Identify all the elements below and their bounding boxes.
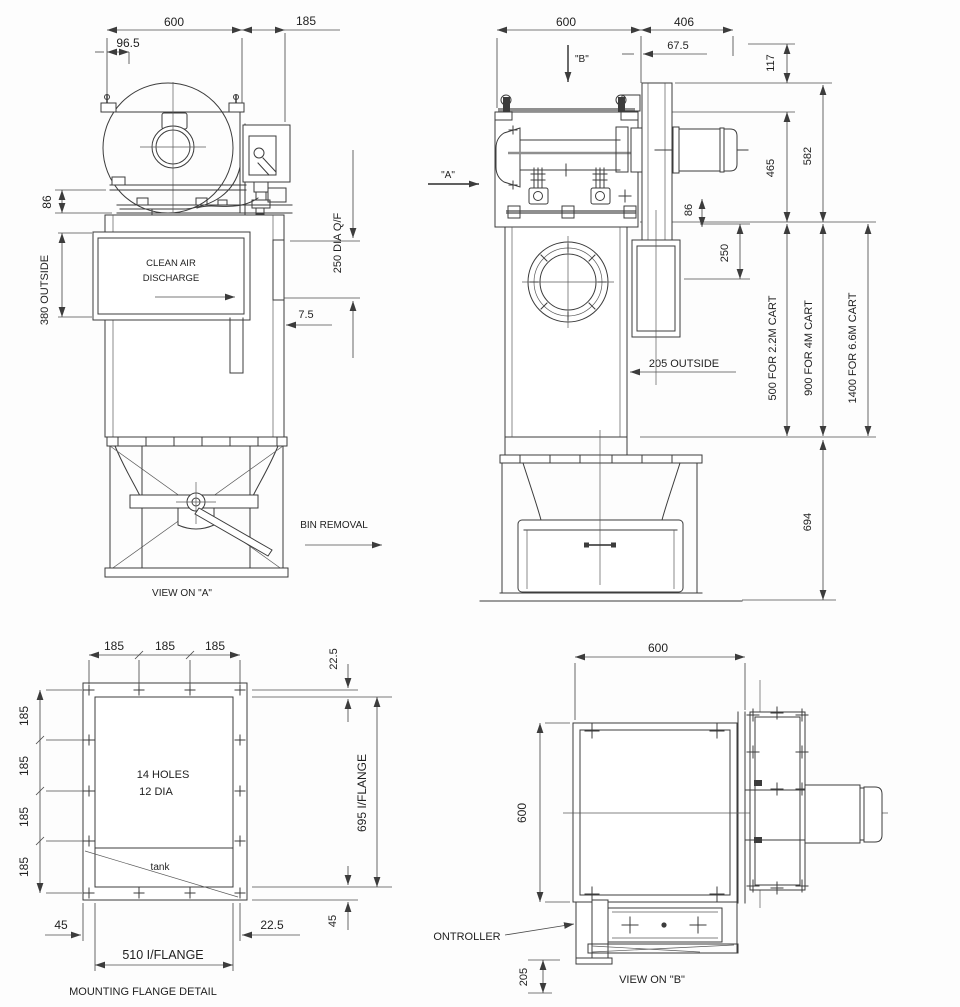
dim-250: 250	[719, 244, 731, 262]
cart-2-2m-label: 500 FOR 2.2M CART	[767, 295, 779, 400]
dim-406: 406	[674, 15, 694, 29]
front-view: 600 96.5 185 86 380 OUTSIDE	[39, 14, 382, 599]
bin-side	[480, 430, 876, 601]
cart-4m-label: 900 FOR 4M CART	[803, 300, 815, 396]
bin-front	[105, 437, 288, 577]
dim-185-top-2: 185	[155, 639, 175, 653]
flange-detail-caption: MOUNTING FLANGE DETAIL	[69, 986, 217, 998]
dim-465: 465	[765, 159, 777, 177]
dim-7-5: 7.5	[298, 309, 313, 321]
dim-185-left-2: 185	[17, 756, 31, 776]
dim-695-iflange: 695 I/FLANGE	[355, 754, 369, 832]
plan-view-caption: VIEW ON "B"	[619, 974, 685, 986]
plan-fan-flange-motor	[745, 707, 882, 894]
holes-note-2: 12 DIA	[139, 786, 173, 798]
bin-removal-label: BIN REMOVAL	[300, 520, 368, 531]
flange-detail: tank 14 HOLES 12 DIA 185 185 185 185 185…	[17, 639, 392, 998]
plan-view: 600 600	[433, 641, 888, 993]
dim-67-5: 67.5	[667, 40, 688, 52]
side-view: 600 406 67.5 117 "B" "A" 465 582 86	[428, 15, 876, 601]
dim-117: 117	[765, 54, 777, 72]
tank-label: tank	[151, 862, 171, 873]
dim-185-left-1: 185	[17, 706, 31, 726]
filter-body-front: CLEAN AIR DISCHARGE	[93, 215, 284, 437]
dim-205-outside: 205 OUTSIDE	[649, 358, 719, 370]
controller-label: ONTROLLER	[433, 931, 500, 943]
dim-185-left-4: 185	[17, 857, 31, 877]
engineering-drawing-page: 600 96.5 185 86 380 OUTSIDE	[0, 0, 960, 1007]
view-a-marker: "A"	[441, 170, 455, 181]
dim-600: 600	[164, 15, 184, 29]
dim-205: 205	[518, 968, 530, 986]
dim-185-left-3: 185	[17, 807, 31, 827]
dim-250-dia-qf: 250 DIA Q/F	[332, 212, 344, 273]
clean-air-label-1: CLEAN AIR	[146, 258, 196, 269]
plan-controller-bracket: ONTROLLER 205 VIEW ON "B"	[433, 900, 738, 993]
dim-600-plan-left: 600	[515, 803, 529, 823]
holes-note-1: 14 HOLES	[137, 769, 190, 781]
front-view-caption: VIEW ON "A"	[152, 588, 212, 599]
cart-6-6m-label: 1400 FOR 6.6M CART	[847, 292, 859, 403]
dim-22-5-bottom: 22.5	[260, 918, 284, 932]
dim-45-right: 45	[327, 915, 339, 927]
dim-600-plan-top: 600	[648, 641, 668, 655]
fan-scroll-front	[101, 82, 292, 216]
dim-185: 185	[296, 14, 316, 28]
dim-86-side: 86	[683, 204, 695, 216]
dim-185-top-3: 185	[205, 639, 225, 653]
fan-casing-side	[495, 95, 660, 227]
dim-45-left: 45	[54, 918, 68, 932]
dim-86: 86	[40, 195, 54, 209]
dim-96-5: 96.5	[116, 36, 140, 50]
dim-185-top-1: 185	[104, 639, 124, 653]
dim-22-5-top: 22.5	[328, 648, 340, 669]
dim-510-iflange: 510 I/FLANGE	[122, 948, 203, 962]
clean-air-label-2: DISCHARGE	[143, 273, 199, 284]
dim-694: 694	[802, 513, 814, 531]
dust-collector-ga-drawing: 600 96.5 185 86 380 OUTSIDE	[0, 0, 960, 1007]
dim-380-outside: 380 OUTSIDE	[39, 255, 51, 325]
view-b-marker: "B"	[575, 54, 589, 65]
dim-582: 582	[802, 147, 814, 165]
dim-600-side: 600	[556, 15, 576, 29]
